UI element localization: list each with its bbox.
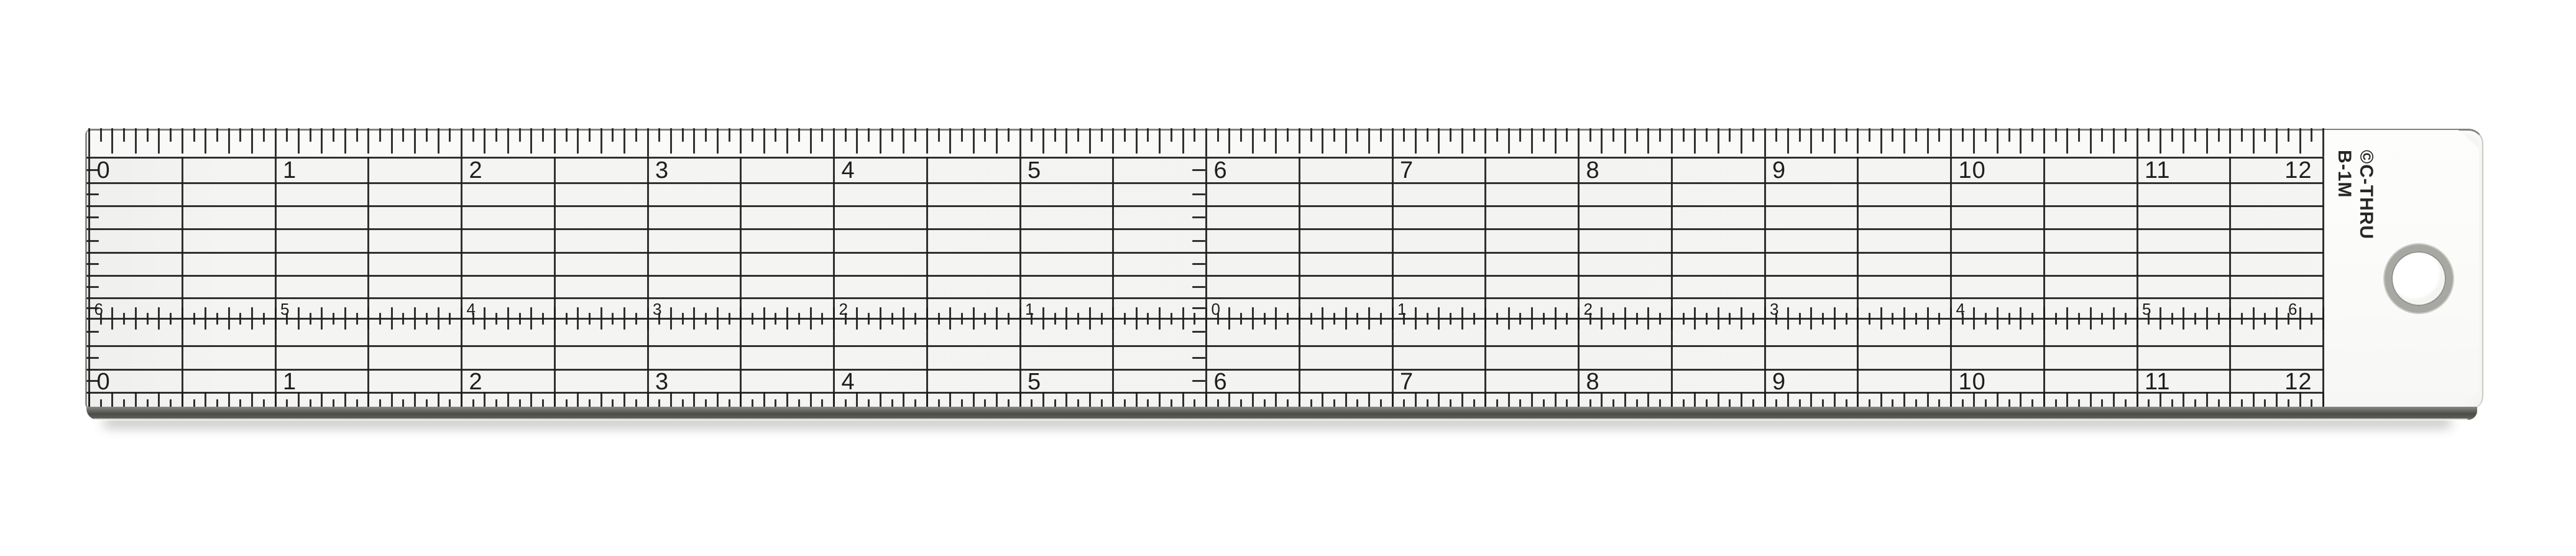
center-scale-tick: [1368, 307, 1370, 330]
top-edge-tick: [2148, 128, 2150, 142]
center-scale-number: 4: [1956, 301, 1965, 317]
top-edge-tick: [1450, 128, 1451, 142]
bottom-edge-tick: [158, 392, 160, 407]
bottom-edge-tick: [1903, 392, 1905, 407]
bottom-edge-tick: [1787, 392, 1789, 407]
center-scale-tick: [2218, 313, 2220, 325]
center-scale-tick: [1950, 307, 1952, 330]
top-edge-tick: [2137, 128, 2138, 157]
bottom-edge-tick: [228, 392, 230, 407]
center-scale-tick: [1718, 307, 1719, 330]
top-edge-tick: [2160, 128, 2161, 154]
center-scale-tick: [1171, 313, 1172, 325]
center-mark-dash: [1192, 286, 1205, 288]
center-scale-tick: [566, 313, 568, 325]
center-scale-tick: [1892, 313, 1893, 325]
top-edge-tick: [310, 128, 311, 142]
top-scale-number: 7: [1400, 158, 1414, 183]
center-scale-tick: [740, 307, 742, 330]
center-scale-tick: [182, 307, 183, 330]
grid-vertical-line: [2137, 157, 2138, 407]
top-edge-tick: [670, 128, 672, 154]
bottom-scale-number: 3: [655, 369, 669, 394]
center-scale-tick: [810, 307, 812, 330]
center-scale-tick: [973, 307, 975, 330]
top-edge-tick: [2311, 128, 2312, 142]
center-scale-tick: [1461, 307, 1463, 330]
center-scale-tick: [763, 307, 765, 330]
top-edge-tick: [135, 128, 137, 154]
center-mark-dash: [1192, 357, 1205, 359]
center-scale-tick: [507, 307, 509, 330]
center-mark-dash: [1192, 216, 1205, 218]
bottom-edge-tick: [1368, 392, 1370, 407]
center-scale-tick: [1519, 313, 1521, 325]
top-edge-tick: [1718, 128, 1719, 154]
center-scale-tick: [1810, 307, 1812, 330]
top-edge-tick: [251, 128, 253, 154]
top-edge-tick: [1065, 128, 1067, 154]
center-scale-tick: [1392, 307, 1394, 330]
center-scale-tick: [147, 313, 149, 325]
center-scale-tick: [1112, 307, 1114, 330]
top-edge-tick: [1182, 128, 1184, 154]
center-scale-tick: [1915, 313, 1917, 325]
top-edge-tick: [1147, 128, 1149, 142]
center-scale-tick: [170, 313, 172, 325]
top-edge-tick: [1683, 128, 1685, 142]
center-scale-tick: [752, 313, 753, 325]
center-scale-tick: [926, 307, 928, 330]
center-scale-tick: [1787, 307, 1789, 330]
top-edge-tick: [775, 128, 776, 142]
left-edge-dash: [86, 357, 99, 359]
bottom-edge-tick: [833, 392, 835, 407]
center-scale-tick: [1008, 313, 1010, 325]
top-edge-tick: [880, 128, 881, 154]
center-scale-tick: [1601, 307, 1603, 330]
top-edge-tick: [1741, 128, 1742, 154]
top-edge-tick: [1438, 128, 1440, 154]
top-edge-tick: [2043, 128, 2045, 154]
grid-vertical-line: [833, 157, 835, 407]
top-scale-number: 8: [1586, 158, 1600, 183]
top-edge-tick: [2020, 128, 2022, 154]
bottom-edge-tick: [740, 392, 742, 407]
top-edge-tick: [798, 128, 800, 142]
center-scale-tick: [1752, 313, 1754, 325]
bottom-edge-tick: [1647, 392, 1649, 407]
top-edge-tick: [961, 128, 963, 142]
top-edge-tick: [356, 128, 358, 142]
center-scale-tick: [135, 307, 137, 330]
top-edge-tick: [1473, 128, 1475, 142]
center-scale-tick: [984, 313, 986, 325]
center-scale-number: 3: [653, 301, 661, 317]
bottom-edge-tick: [1461, 392, 1463, 407]
center-scale-tick: [1694, 307, 1696, 330]
center-scale-tick: [449, 313, 451, 325]
top-edge-tick: [402, 128, 404, 142]
bottom-edge-tick: [2020, 392, 2022, 407]
center-scale-tick: [1345, 307, 1347, 330]
top-edge-tick: [729, 128, 730, 142]
center-scale-tick: [1299, 307, 1300, 330]
center-scale-number: 0: [1212, 301, 1220, 317]
top-edge-tick: [1392, 128, 1394, 157]
top-edge-tick: [88, 128, 90, 157]
bottom-edge-tick: [554, 392, 556, 407]
top-scale-number: 11: [2145, 158, 2170, 183]
bottom-edge-tick: [438, 392, 439, 407]
top-edge-tick: [2008, 128, 2010, 142]
center-mark-dash: [1192, 240, 1205, 242]
center-scale-tick: [1484, 307, 1486, 330]
top-edge-tick: [1834, 128, 1836, 154]
top-edge-tick: [147, 128, 149, 142]
top-edge-tick: [193, 128, 195, 142]
top-edge-tick: [1217, 128, 1219, 142]
bottom-edge-tick: [88, 392, 90, 407]
center-scale-tick: [938, 313, 940, 325]
center-scale-tick: [775, 313, 776, 325]
center-scale-tick: [1729, 313, 1731, 325]
center-mark-dash: [1192, 169, 1205, 171]
top-edge-tick: [1194, 128, 1195, 142]
center-scale-tick: [158, 307, 160, 330]
center-scale-tick: [111, 307, 113, 330]
bottom-edge-tick: [1741, 392, 1742, 407]
top-edge-tick: [1101, 128, 1103, 142]
top-edge-tick: [1857, 128, 1859, 154]
bottom-edge-tick: [1834, 392, 1836, 407]
center-scale-tick: [2183, 307, 2184, 330]
top-edge-tick: [1601, 128, 1603, 154]
grid-vertical-line: [367, 157, 369, 407]
top-edge-tick: [833, 128, 835, 157]
top-edge-tick: [1042, 128, 1044, 154]
top-edge-tick: [1112, 128, 1114, 154]
top-edge-tick: [1589, 128, 1591, 142]
center-scale-tick: [1054, 313, 1056, 325]
center-scale-tick: [1624, 307, 1626, 330]
top-edge-tick: [1054, 128, 1056, 142]
grid-vertical-line: [1205, 157, 1207, 407]
center-scale-tick: [1427, 313, 1428, 325]
center-scale-tick: [2171, 313, 2173, 325]
bottom-edge-tick: [693, 392, 695, 407]
center-scale-tick: [356, 313, 358, 325]
center-scale-tick: [1671, 307, 1673, 330]
center-scale-tick: [1065, 307, 1067, 330]
center-scale-tick: [856, 307, 858, 330]
center-scale-tick: [542, 313, 544, 325]
bottom-edge-tick: [1950, 392, 1952, 407]
top-edge-tick: [1380, 128, 1382, 142]
top-edge-tick: [170, 128, 172, 142]
top-edge-tick: [1264, 128, 1266, 142]
top-edge-tick: [1892, 128, 1893, 142]
center-scale-tick: [310, 313, 311, 325]
center-scale-tick: [228, 307, 230, 330]
top-edge-tick: [2299, 128, 2301, 154]
top-edge-tick: [752, 128, 753, 142]
center-scale-tick: [402, 313, 404, 325]
center-scale-tick: [589, 313, 591, 325]
bottom-edge-tick: [1997, 392, 1999, 407]
center-scale-tick: [298, 307, 300, 330]
top-edge-tick: [786, 128, 788, 154]
top-scale-number: 3: [655, 158, 669, 183]
top-edge-tick: [1077, 128, 1079, 142]
center-scale-tick: [1310, 313, 1312, 325]
top-edge-tick: [1973, 128, 1975, 154]
top-edge-tick: [1997, 128, 1999, 154]
center-scale-number: 6: [94, 301, 103, 317]
bottom-scale-number: 11: [2145, 369, 2170, 394]
top-edge-tick: [2101, 128, 2103, 142]
bottom-edge-tick: [1089, 392, 1091, 407]
top-edge-tick: [1322, 128, 1323, 154]
bottom-edge-tick: [1228, 392, 1230, 407]
center-scale-tick: [891, 313, 893, 325]
bottom-edge-tick: [414, 392, 416, 407]
bottom-edge-tick: [996, 392, 998, 407]
center-scale-tick: [321, 307, 323, 330]
top-edge-tick: [1578, 128, 1580, 157]
center-scale-tick: [577, 307, 579, 330]
center-scale-tick: [600, 307, 602, 330]
bottom-edge-tick: [1322, 392, 1323, 407]
bottom-edge-tick: [1601, 392, 1603, 407]
center-scale-tick: [2113, 307, 2115, 330]
top-edge-tick: [182, 128, 183, 154]
center-mark-dash: [1192, 263, 1205, 265]
top-edge-tick: [1356, 128, 1358, 142]
center-scale-number: 6: [2235, 301, 2298, 317]
center-scale-tick: [2125, 313, 2127, 325]
top-edge-tick: [1333, 128, 1335, 142]
top-edge-tick: [1799, 128, 1801, 142]
top-edge-tick: [484, 128, 485, 154]
bottom-edge-tick: [1415, 392, 1417, 407]
top-edge-tick: [1415, 128, 1417, 154]
grid-vertical-line: [2322, 157, 2324, 407]
top-edge-tick: [2253, 128, 2255, 154]
center-scale-tick: [275, 307, 277, 330]
top-scale-number: 5: [1028, 158, 1041, 183]
top-edge-tick: [2031, 128, 2033, 142]
center-scale-tick: [216, 313, 218, 325]
center-scale-tick: [1182, 307, 1184, 330]
bottom-scale-number: 9: [1772, 369, 1786, 394]
center-scale-tick: [344, 307, 346, 330]
top-edge-tick: [1846, 128, 1847, 142]
top-edge-tick: [1694, 128, 1696, 154]
bottom-scale-number: 12: [2247, 369, 2312, 394]
center-scale-tick: [2031, 313, 2033, 325]
center-scale-tick: [1997, 307, 1999, 330]
top-edge-tick: [495, 128, 497, 142]
top-edge-tick: [158, 128, 160, 154]
top-edge-tick: [2264, 128, 2266, 142]
top-edge-tick: [1624, 128, 1626, 154]
top-edge-tick: [1985, 128, 1987, 142]
top-edge-tick: [2090, 128, 2092, 154]
top-edge-tick: [1810, 128, 1812, 154]
top-edge-tick: [1299, 128, 1300, 154]
bottom-edge-tick: [344, 392, 346, 407]
bottom-edge-tick: [1205, 392, 1207, 407]
bottom-edge-tick: [2113, 392, 2115, 407]
top-edge-tick: [2322, 128, 2324, 157]
top-edge-tick: [1345, 128, 1347, 154]
top-edge-tick: [1752, 128, 1754, 142]
center-scale-tick: [484, 307, 485, 330]
center-scale-tick: [1822, 313, 1824, 325]
top-edge-tick: [1822, 128, 1824, 142]
top-edge-tick: [1671, 128, 1673, 154]
top-edge-tick: [1659, 128, 1661, 142]
grid-vertical-line: [275, 157, 277, 407]
center-scale-tick: [88, 307, 90, 330]
bottom-edge-tick: [856, 392, 858, 407]
bottom-edge-tick: [484, 392, 485, 407]
bottom-edge-tick: [926, 392, 928, 407]
top-edge-tick: [461, 128, 462, 157]
bottom-edge-tick: [1042, 392, 1044, 407]
top-edge-tick: [705, 128, 707, 142]
top-edge-tick: [1136, 128, 1138, 154]
top-edge-tick: [914, 128, 916, 142]
bottom-edge-tick: [1857, 392, 1859, 407]
top-edge-tick: [1729, 128, 1731, 142]
top-edge-tick: [1787, 128, 1789, 154]
top-edge-tick: [1915, 128, 1917, 142]
left-edge-dash: [86, 193, 99, 195]
top-edge-tick: [612, 128, 614, 142]
center-scale-tick: [1101, 313, 1103, 325]
bottom-edge-tick: [577, 392, 579, 407]
center-scale-tick: [1275, 307, 1277, 330]
center-scale-tick: [2311, 313, 2312, 325]
center-scale-tick: [635, 313, 637, 325]
center-scale-tick: [1089, 307, 1091, 330]
top-edge-tick: [1555, 128, 1557, 154]
center-scale-tick: [1683, 313, 1685, 325]
bottom-edge-tick: [2183, 392, 2184, 407]
top-scale-number: 4: [842, 158, 855, 183]
top-edge-tick: [1287, 128, 1289, 142]
bottom-edge-tick: [647, 392, 649, 407]
center-scale-tick: [530, 307, 532, 330]
left-edge-dash: [86, 331, 99, 333]
grid-vertical-line: [926, 157, 928, 407]
top-edge-tick: [2066, 128, 2068, 154]
top-edge-tick: [1171, 128, 1172, 142]
center-mark-dash: [1192, 380, 1205, 382]
bottom-edge-tick: [1182, 392, 1184, 407]
top-edge-tick: [1461, 128, 1463, 154]
center-scale-tick: [1880, 307, 1882, 330]
center-scale-tick: [1124, 313, 1126, 325]
center-scale-tick: [996, 307, 998, 330]
top-edge-tick: [1484, 128, 1486, 154]
center-scale-tick: [949, 307, 951, 330]
bottom-edge-tick: [391, 392, 393, 407]
center-mark-dash: [1192, 307, 1205, 309]
top-edge-tick: [984, 128, 986, 142]
grid-vertical-line: [647, 157, 649, 407]
top-edge-tick: [2229, 128, 2231, 154]
center-scale-tick: [1240, 313, 1242, 325]
center-scale-tick: [1764, 307, 1766, 330]
top-edge-tick: [239, 128, 241, 142]
bottom-edge-tick: [1019, 392, 1021, 407]
bottom-edge-tick: [2322, 392, 2324, 407]
bottom-edge-tick: [1345, 392, 1347, 407]
center-mark-dash: [1192, 193, 1205, 195]
bottom-edge-highlight: [93, 419, 2468, 420]
top-edge-tick: [321, 128, 323, 154]
top-edge-tick: [1427, 128, 1428, 142]
bottom-edge-tick: [2229, 392, 2231, 407]
bottom-edge-tick: [1810, 392, 1812, 407]
bottom-edge-tick: [2066, 392, 2068, 407]
center-scale-tick: [729, 313, 730, 325]
top-edge-tick: [566, 128, 568, 142]
center-scale-tick: [1508, 307, 1510, 330]
center-scale-tick: [1973, 307, 1975, 330]
top-edge-tick: [1275, 128, 1277, 154]
top-edge-tick: [1647, 128, 1649, 154]
center-scale-tick: [1496, 313, 1498, 325]
grid-vertical-line: [740, 157, 742, 407]
top-edge-tick: [1519, 128, 1521, 142]
top-edge-tick: [658, 128, 660, 142]
grid-vertical-line: [1578, 157, 1580, 407]
top-edge-tick: [1089, 128, 1091, 154]
top-edge-tick: [1205, 128, 1207, 157]
top-edge-tick: [333, 128, 334, 142]
top-edge-tick: [810, 128, 812, 154]
top-edge-tick: [391, 128, 393, 154]
top-edge-tick: [414, 128, 416, 154]
center-scale-tick: [2066, 307, 2068, 330]
ruler-body: [85, 129, 2483, 410]
top-edge-tick: [2206, 128, 2208, 154]
center-scale-tick: [1077, 313, 1079, 325]
center-scale-tick: [1799, 313, 1801, 325]
center-scale-tick: [623, 307, 625, 330]
bottom-edge-tick: [1299, 392, 1300, 407]
bottom-edge-tick: [2206, 392, 2208, 407]
top-edge-tick: [623, 128, 625, 154]
bottom-edge-tick: [2137, 392, 2138, 407]
bottom-edge-tick: [1694, 392, 1696, 407]
top-edge-tick: [1612, 128, 1614, 142]
bottom-edge-tick: [1438, 392, 1440, 407]
grid-vertical-line: [2229, 157, 2231, 407]
bottom-edge-tick: [461, 392, 462, 407]
top-edge-tick: [554, 128, 556, 154]
top-edge-tick: [1566, 128, 1568, 142]
center-scale-tick: [903, 307, 904, 330]
bottom-edge-tick: [903, 392, 904, 407]
top-edge-tick: [600, 128, 602, 154]
top-edge-tick: [472, 128, 474, 142]
top-edge-tick: [949, 128, 951, 154]
